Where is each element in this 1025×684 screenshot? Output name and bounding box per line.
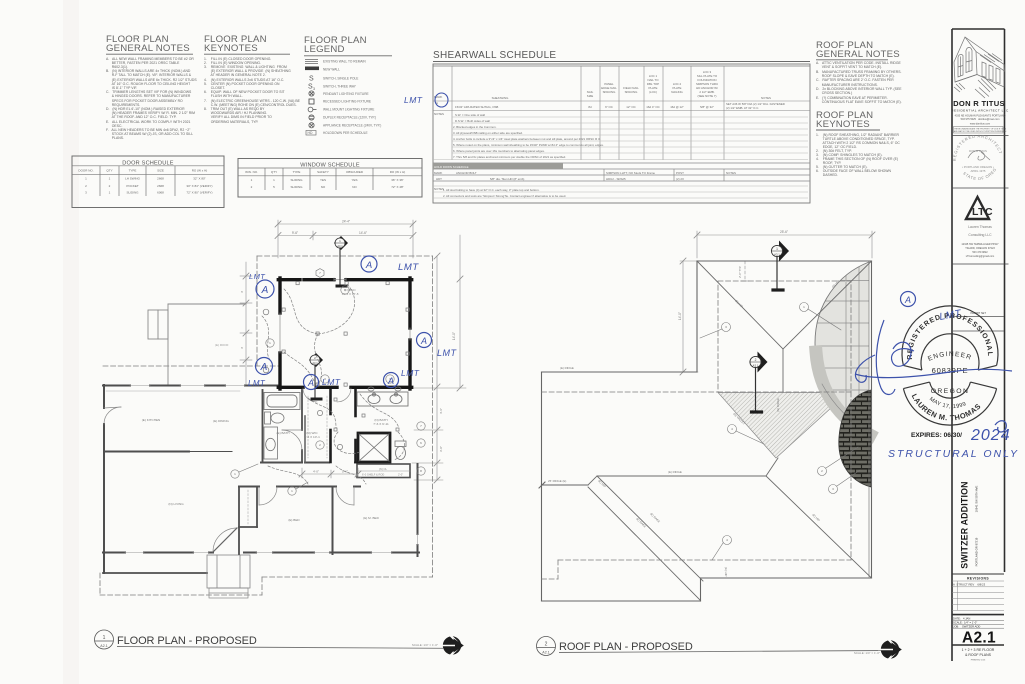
svg-text:16d 4" OC: 16d 4" OC <box>646 105 659 109</box>
svg-text:HOLD DOWN SCHEDULE: HOLD DOWN SCHEDULE <box>434 165 469 169</box>
svg-text:QTY: QTY <box>271 170 277 174</box>
svg-text:DOOR SCHEDULE: DOOR SCHEDULE <box>122 161 173 167</box>
svg-text:Lаuren Thomаs: Lаuren Thomаs <box>968 225 992 229</box>
svg-text:A: A <box>420 336 427 346</box>
svg-text:5. Where noted on the plans, m: 5. Where noted on the plans, minimum wal… <box>453 143 604 147</box>
svg-text:ANCHOR BOLT: ANCHOR BOLT <box>456 171 477 175</box>
svg-text:9'-6": 9'-6" <box>292 231 298 235</box>
svg-text:S: S <box>309 76 314 83</box>
svg-text:A3.1: A3.1 <box>337 244 343 248</box>
svg-text:LMT: LMT <box>248 379 266 388</box>
svg-text:LMT: LMT <box>322 377 341 387</box>
svg-text:EXISTING WALL TO REMAIN: EXISTING WALL TO REMAIN <box>323 60 366 64</box>
svg-text:5/8" @ 32": 5/8" @ 32" <box>700 105 714 109</box>
svg-text:(E) RAKE: (E) RAKE <box>635 517 647 529</box>
svg-text:8: 8 <box>420 469 422 473</box>
svg-text:5'-6 X 10'-1: 5'-6 X 10'-1 <box>304 435 320 439</box>
svg-text:SIMPSON LHTT, NO Studs TO Fram: SIMPSON LHTT, NO Studs TO Frame <box>606 171 655 175</box>
svg-text:HDT: HDT <box>436 177 442 181</box>
svg-text:7. Thru 5/8 and 6x plates anch: 7. Thru 5/8 and 6x plates anchored minim… <box>453 155 566 159</box>
svg-text:www.dontitus.com: www.dontitus.com <box>970 123 990 126</box>
svg-text:SWITZER ADDITION: SWITZER ADDITION <box>960 481 970 568</box>
svg-text:SPACING: SPACING <box>603 90 617 94</box>
svg-text:1: 1 <box>234 472 236 476</box>
svg-text:7'-6 X 9'-11: 7'-6 X 9'-11 <box>373 422 389 426</box>
svg-text:PORTLAND OR 97219: PORTLAND OR 97219 <box>975 537 979 566</box>
svg-text:4'-0": 4'-0" <box>313 470 319 474</box>
svg-text:(E) RAKE: (E) RAKE <box>649 512 661 524</box>
svg-text:2: 2 <box>85 184 87 188</box>
svg-text:5/8" dia. Titen HD (8" emb): 5/8" dia. Titen HD (8" emb) <box>490 177 524 181</box>
svg-text:503 975 5025 dontitus@mac.co: 503 975 5025 dontitus@mac.com <box>961 118 1000 121</box>
svg-text:PRINTED 1/23: PRINTED 1/23 <box>971 660 986 662</box>
svg-text:TYPE: TYPE <box>129 169 137 173</box>
svg-text:3: 3 <box>85 191 87 195</box>
svg-text:DON R TITUS: DON R TITUS <box>953 99 1005 108</box>
svg-text:72" X 80" (VERIFY): 72" X 80" (VERIFY) <box>186 191 212 195</box>
svg-text:8d: 8d <box>588 105 592 109</box>
svg-text:WIN. NO.: WIN. NO. <box>245 170 258 174</box>
svg-text:(E) RIDGE: (E) RIDGE <box>668 470 682 474</box>
svg-text:STRUCTURAL ONLY: STRUCTURAL ONLY <box>888 448 1019 460</box>
svg-text:NAILING: NAILING <box>671 90 683 94</box>
svg-text:14'-0": 14'-0" <box>678 312 682 320</box>
svg-text:2668: 2668 <box>157 184 164 188</box>
svg-text:TYPE: TYPE <box>293 170 301 174</box>
svg-text:(E) DINING: (E) DINING <box>213 419 229 423</box>
svg-text:A2.1: A2.1 <box>100 644 107 648</box>
svg-text:1: 1 <box>109 177 111 181</box>
svg-text:1: 1 <box>269 341 271 345</box>
svg-text:(E) HIP: (E) HIP <box>724 567 728 577</box>
svg-text:POST: POST <box>676 171 684 175</box>
svg-text:32" X 80": 32" X 80" <box>193 177 205 181</box>
svg-text:2: 2 <box>319 443 321 447</box>
svg-text:(N) RIDGE: (N) RIDGE <box>776 398 780 412</box>
svg-text:SWITCH, THREE WAY: SWITCH, THREE WAY <box>323 84 357 88</box>
svg-text:DATE: 4 JAN: DATE: 4 JAN <box>953 617 970 621</box>
svg-text:(E) BATH: (E) BATH <box>276 431 289 435</box>
svg-text:(E) BED: (E) BED <box>288 518 300 522</box>
svg-text:1: 1 <box>109 191 111 195</box>
svg-text:REVISIONS: REVISIONS <box>967 577 989 581</box>
svg-text:4. Anchor bolts to include a 3: 4. Anchor bolts to include a 3"x3" x 1/4… <box>453 137 601 141</box>
svg-text:YES: YES <box>351 178 357 182</box>
svg-text:STATE OF OREGON: STATE OF OREGON <box>0 0 998 181</box>
svg-text:1: 1 <box>803 305 805 309</box>
svg-text:25' RIDGE (E): 25' RIDGE (E) <box>548 479 566 483</box>
svg-text:LTC: LTC <box>972 206 993 218</box>
svg-text:1: 1 <box>103 635 106 641</box>
svg-text:(E) KITCHEN: (E) KITCHEN <box>142 418 161 422</box>
svg-text:ENGINEER: ENGINEER <box>927 351 973 363</box>
svg-text:A: A <box>307 378 314 388</box>
svg-text:25'-6": 25'-6" <box>780 230 788 234</box>
svg-text:MARK: MARK <box>434 171 442 175</box>
svg-text:OBSCURED: OBSCURED <box>346 170 364 174</box>
svg-text:2: 2 <box>545 642 548 648</box>
svg-text:(E) HIP: (E) HIP <box>597 479 607 489</box>
svg-text:6'-0 SHELF & ROD: 6'-0 SHELF & ROD <box>362 473 384 477</box>
svg-text:ROOF PLAN - PROPOSED: ROOF PLAN - PROPOSED <box>559 641 693 653</box>
svg-text:12345 SW TERWILLIGER PKWY: 12345 SW TERWILLIGER PKWY <box>961 243 999 246</box>
svg-text:A STRUCT REV 6/8/23: A STRUCT REV 6/8/23 <box>953 582 986 586</box>
svg-text:LTConsulting@gmail.com: LTConsulting@gmail.com <box>966 255 994 258</box>
svg-text:NEW WALL: NEW WALL <box>323 67 340 71</box>
svg-text:4: 4 <box>731 427 733 431</box>
svg-text:A: A <box>387 376 394 386</box>
svg-text:(SEE NOTE 7): (SEE NOTE 7) <box>698 94 717 98</box>
svg-text:7: 7 <box>420 424 422 428</box>
svg-text:3: 3 <box>725 325 727 329</box>
svg-text:(LOC): (LOC) <box>649 90 657 94</box>
svg-text:SLIDING: SLIDING <box>126 191 139 195</box>
svg-text:14'-6": 14'-6" <box>359 231 367 235</box>
svg-text:2: 2 <box>109 184 111 188</box>
svg-text:30" X 84" (VERIFY): 30" X 84" (VERIFY) <box>186 184 212 188</box>
svg-text:15/32" APA RATED SHTHG, OSB: 15/32" APA RATED SHTHG, OSB <box>455 105 498 109</box>
svg-text:2668: 2668 <box>157 177 164 181</box>
svg-text:SIZE: SIZE <box>587 94 593 98</box>
svg-text:TIGARD, OREGON 97223: TIGARD, OREGON 97223 <box>965 247 995 250</box>
svg-text:RO (W x H): RO (W x H) <box>192 169 208 173</box>
svg-text:12" OC: 12" OC <box>626 105 635 109</box>
svg-text:A3.1: A3.1 <box>312 361 318 365</box>
svg-text:2'-0": 2'-0" <box>398 473 403 477</box>
svg-text:WALL MOUNT LIGHTING FIXTURE: WALL MOUNT LIGHTING FIXTURE <box>323 108 374 112</box>
svg-text:LMT: LMT <box>401 368 420 378</box>
svg-text:APPLIANCE RECEPTACLE (240V, TY: APPLIANCE RECEPTACLE (240V, TYP.) <box>323 123 381 127</box>
svg-text:SCALE: 1/4" = 1'-0": SCALE: 1/4" = 1'-0" <box>854 651 880 655</box>
svg-text:1: 1 <box>273 178 275 182</box>
svg-text:1: 1 <box>776 247 778 251</box>
svg-text:JOB: SWITZER ADD: JOB: SWITZER ADD <box>953 624 980 628</box>
svg-text:503 479 9822: 503 479 9822 <box>972 251 988 254</box>
svg-text:2. Blocked edges in the Common: 2. Blocked edges in the Common. <box>453 125 497 129</box>
svg-text:A2.1: A2.1 <box>962 630 996 647</box>
svg-text:SIZE: SIZE <box>157 169 164 173</box>
svg-text:72" X 48": 72" X 48" <box>391 185 403 189</box>
svg-text:A: A <box>904 295 911 305</box>
svg-text:PENDANT LIGHTING FIXTURE: PENDANT LIGHTING FIXTURE <box>323 92 369 96</box>
svg-text:A: A <box>365 260 372 271</box>
svg-text:FLOOR PLAN - PROPOSED: FLOOR PLAN - PROPOSED <box>117 635 257 647</box>
svg-text:(E) M. BED: (E) M. BED <box>363 516 379 520</box>
svg-text:HD: HD <box>308 131 313 135</box>
svg-text:(E) RIDGE: (E) RIDGE <box>560 366 574 370</box>
svg-text:1 + 2 + 3 RE FLOOR: 1 + 2 + 3 RE FLOOR <box>962 648 995 652</box>
svg-text:AND MAY NOT BE USED WITHOUT WR: AND MAY NOT BE USED WITHOUT WRITTEN PERM… <box>954 130 1007 133</box>
svg-text:SLIDING: SLIDING <box>290 178 303 182</box>
svg-text:A2.1: A2.1 <box>542 651 549 655</box>
svg-text:LH SWING: LH SWING <box>125 177 141 181</box>
svg-text:1: 1 <box>251 178 253 182</box>
svg-text:Consulting LLC: Consulting LLC <box>968 233 992 237</box>
svg-text:2: 2 <box>251 185 253 189</box>
svg-text:2. All connectors and tools ar: 2. All connectors and tools are 'Simpson… <box>443 194 566 198</box>
svg-text:QTY: QTY <box>106 169 112 173</box>
svg-text:(N) CL: (N) CL <box>379 467 388 471</box>
svg-text:A: A <box>260 362 268 373</box>
svg-text:3: 3 <box>313 87 315 91</box>
svg-text:NO: NO <box>352 185 357 189</box>
svg-text:SWITCH, SINGLE POLE: SWITCH, SINGLE POLE <box>323 76 358 80</box>
svg-text:LMT: LMT <box>404 95 423 105</box>
svg-text:REGISTERED ARCHITECT: REGISTERED ARCHITECT <box>952 133 1003 161</box>
svg-text:DOOR NO.: DOOR NO. <box>78 169 93 173</box>
svg-text:HOLDDOWN PER SCHEDULE: HOLDDOWN PER SCHEDULE <box>323 131 368 135</box>
svg-text:(N) LIVING: (N) LIVING <box>168 502 184 506</box>
svg-text:24'-4": 24'-4" <box>342 220 350 224</box>
svg-text:3. All plywood/OSB nailing on: 3. All plywood/OSB nailing on either sid… <box>453 131 523 135</box>
svg-text:6. Where panel joints are over: 6. Where panel joints are over 16s membe… <box>453 149 545 153</box>
svg-text:A: A <box>261 285 269 296</box>
svg-text:SCALE: 1/4" = 1'-0": SCALE: 1/4" = 1'-0" <box>412 643 438 647</box>
svg-text:3'-0": 3'-0" <box>439 446 443 452</box>
svg-text:RECESSED LIGHTING FIXTURE: RECESSED LIGHTING FIXTURE <box>323 100 371 104</box>
svg-text:RO (W x H): RO (W x H) <box>390 170 406 174</box>
svg-text:5'-6": 5'-6" <box>342 470 348 474</box>
svg-text:6: 6 <box>420 441 422 445</box>
svg-text:WINDOW SCHEDULE: WINDOW SCHEDULE <box>300 163 360 169</box>
svg-text:(2) 1/2" EMB. AT 32" O.C.: (2) 1/2" EMB. AT 32" O.C. <box>726 106 759 110</box>
svg-text:2: 2 <box>755 358 757 362</box>
svg-text:HDU2 - SDS25: HDU2 - SDS25 <box>606 177 626 181</box>
svg-text:(E) ROOF: (E) ROOF <box>215 343 229 347</box>
svg-text:2'-0" TYP: 2'-0" TYP <box>738 266 742 278</box>
svg-text:& ROOF PLANS: & ROOF PLANS <box>965 653 992 657</box>
svg-text:10941 SW 59TH AVE: 10941 SW 59TH AVE <box>975 486 979 513</box>
svg-text:D.S.W. = Both sides of wall: D.S.W. = Both sides of wall <box>455 119 490 123</box>
svg-text:NO: NO <box>321 185 326 189</box>
svg-text:7: 7 <box>319 271 321 275</box>
svg-text:14'-0": 14'-0" <box>452 332 456 340</box>
svg-text:4'-6": 4'-6" <box>439 408 443 414</box>
svg-text:1: 1 <box>85 177 87 181</box>
svg-text:APRIL 1975: APRIL 1975 <box>971 169 986 173</box>
svg-text:NOTES: NOTES <box>726 171 736 175</box>
svg-text:2024: 2024 <box>970 427 1011 444</box>
svg-text:S.W. = One side of wall: S.W. = One side of wall <box>455 113 485 117</box>
svg-text:4': 4' <box>240 290 244 293</box>
svg-text:4': 4' <box>240 346 244 349</box>
svg-text:3: 3 <box>832 487 834 491</box>
svg-text:1. All stud bolting to have (4: 1. All stud bolting to have (4) at 32" O… <box>443 188 540 192</box>
svg-text:SHEATHING: SHEATHING <box>492 96 509 100</box>
svg-text:SAFETY: SAFETY <box>317 170 329 174</box>
svg-text:LMT: LMT <box>398 262 419 273</box>
svg-text:16d @ 12": 16d @ 12" <box>670 105 684 109</box>
svg-text:POCKET: POCKET <box>126 184 139 188</box>
svg-text:36" X 36": 36" X 36" <box>391 178 403 182</box>
svg-text:NOTES: NOTES <box>434 112 444 116</box>
svg-text:1: 1 <box>291 489 293 493</box>
svg-text:NOTES: NOTES <box>761 96 771 100</box>
svg-text:LMT: LMT <box>437 348 458 358</box>
svg-text:SCALE: 1/4" = 1'-0": SCALE: 1/4" = 1'-0" <box>953 621 977 625</box>
svg-text:6" OC: 6" OC <box>605 105 613 109</box>
svg-text:YES: YES <box>320 178 326 182</box>
svg-text:(2) 2X: (2) 2X <box>676 177 684 181</box>
svg-text:SHEARWALL SCHEDULE: SHEARWALL SCHEDULE <box>433 50 556 61</box>
svg-text:RESIDENTIAL ARCHITECT LLC: RESIDENTIAL ARCHITECT LLC <box>951 109 1009 113</box>
svg-text:2: 2 <box>821 469 823 473</box>
svg-text:DUPLEX RECEPTACLE (120V, TYP.): DUPLEX RECEPTACLE (120V, TYP.) <box>323 116 376 120</box>
svg-text:5: 5 <box>273 185 275 189</box>
svg-text:OREGON: OREGON <box>931 388 970 395</box>
svg-text:EXPIRES: 06/30/: EXPIRES: 06/30/ <box>911 432 962 439</box>
svg-text:4: 4 <box>726 538 728 542</box>
svg-text:6068: 6068 <box>157 191 164 195</box>
svg-text:SLIDING: SLIDING <box>290 185 303 189</box>
svg-text:SPACING: SPACING <box>625 90 639 94</box>
svg-text:DON R TITUS: DON R TITUS <box>969 149 987 153</box>
svg-text:THESE DRAWINGS ARE THE PROPERT: THESE DRAWINGS ARE THE PROPERTY OF DON R… <box>954 127 1007 130</box>
